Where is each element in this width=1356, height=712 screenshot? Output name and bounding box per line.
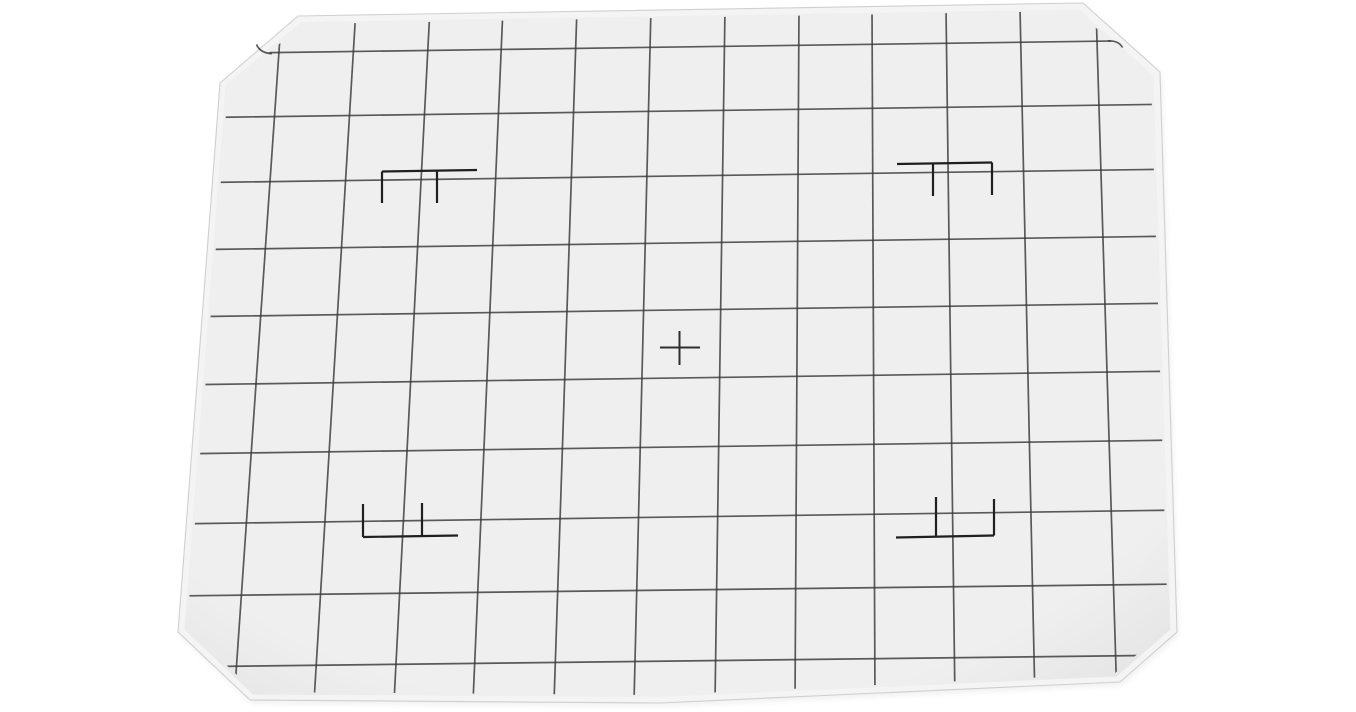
scene-svg [0,0,1356,712]
format-mark-bottom-left-line [363,536,458,538]
photo-stage [0,0,1356,712]
format-mark-top-right-line [897,163,992,165]
format-mark-top-left-line [382,170,477,172]
